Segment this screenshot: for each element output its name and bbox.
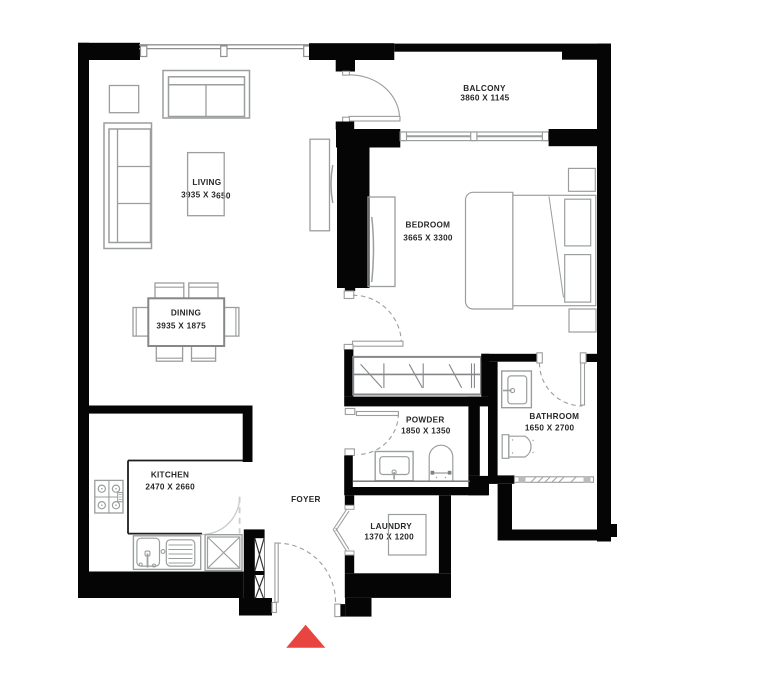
svg-text:BATHROOM: BATHROOM: [529, 412, 579, 421]
svg-text:FOYER: FOYER: [291, 495, 321, 504]
svg-text:POWDER: POWDER: [406, 416, 445, 425]
svg-text:2470 X 2660: 2470 X 2660: [145, 483, 195, 492]
svg-text:3860 X 1145: 3860 X 1145: [460, 94, 509, 103]
svg-text:LAUNDRY: LAUNDRY: [370, 522, 412, 531]
svg-text:LIVING: LIVING: [192, 178, 221, 187]
svg-text:3935 X 3650: 3935 X 3650: [181, 190, 231, 200]
svg-text:1650 X 2700: 1650 X 2700: [525, 423, 575, 432]
svg-text:DINING: DINING: [171, 309, 201, 318]
svg-text:3935 X 1875: 3935 X 1875: [156, 322, 206, 331]
svg-text:1850 X 1350: 1850 X 1350: [401, 426, 451, 435]
svg-text:BEDROOM: BEDROOM: [406, 221, 451, 230]
svg-text:BALCONY: BALCONY: [463, 84, 506, 93]
svg-text:KITCHEN: KITCHEN: [151, 471, 189, 480]
svg-text:3665 X 3300: 3665 X 3300: [403, 234, 453, 243]
svg-text:1370 X 1200: 1370 X 1200: [364, 533, 414, 542]
